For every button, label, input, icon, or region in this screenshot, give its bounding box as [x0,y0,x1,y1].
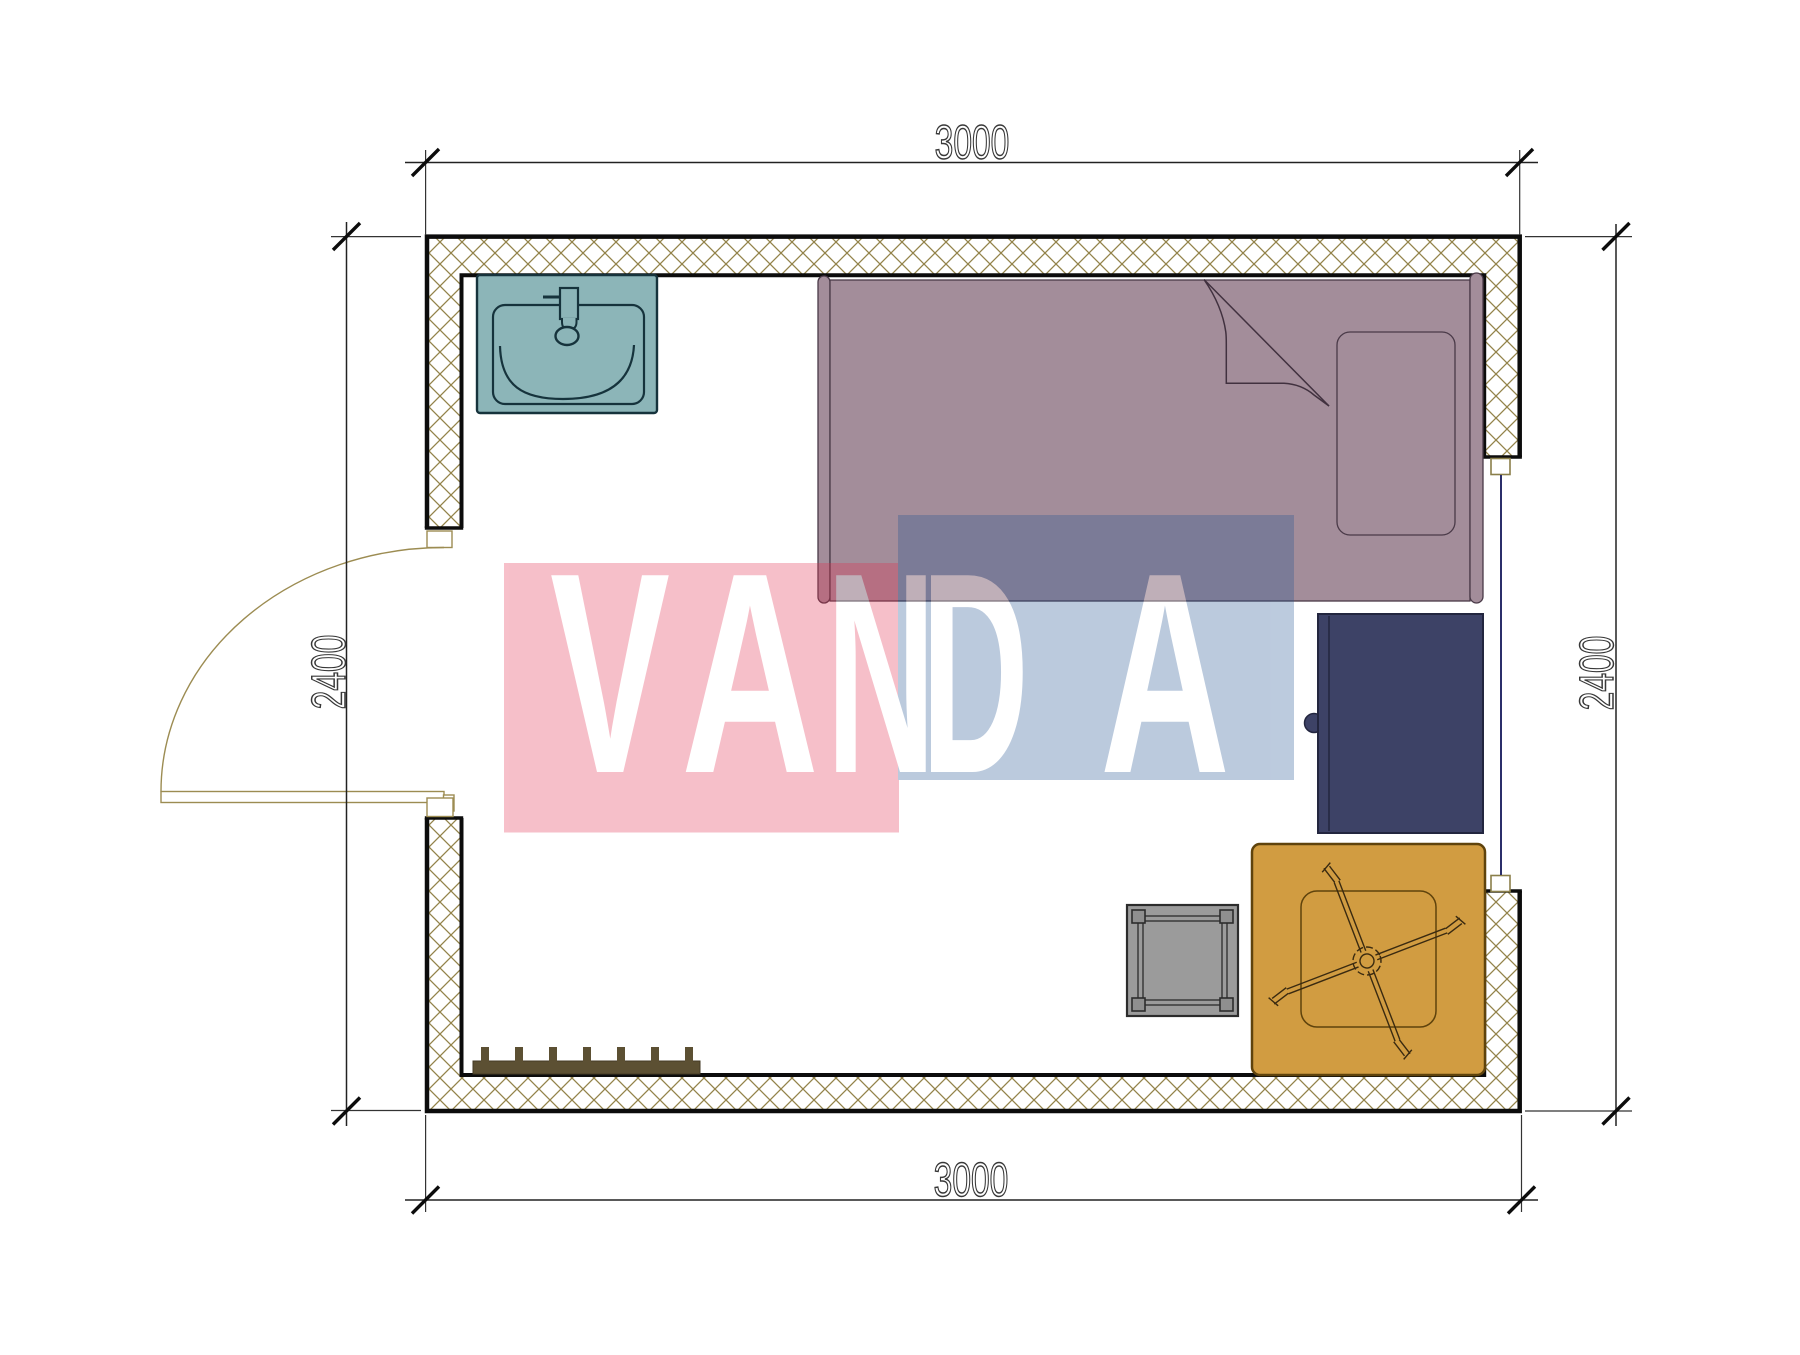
svg-text:2400: 2400 [1569,636,1623,711]
svg-text:A: A [681,513,819,833]
svg-text:A: A [1100,513,1230,833]
svg-text:D: D [921,513,1029,833]
svg-text:3000: 3000 [935,114,1010,168]
svg-text:2400: 2400 [301,635,355,710]
svg-text:3000: 3000 [934,1152,1009,1206]
svg-text:V: V [550,513,671,833]
svg-text:N: N [826,513,936,833]
